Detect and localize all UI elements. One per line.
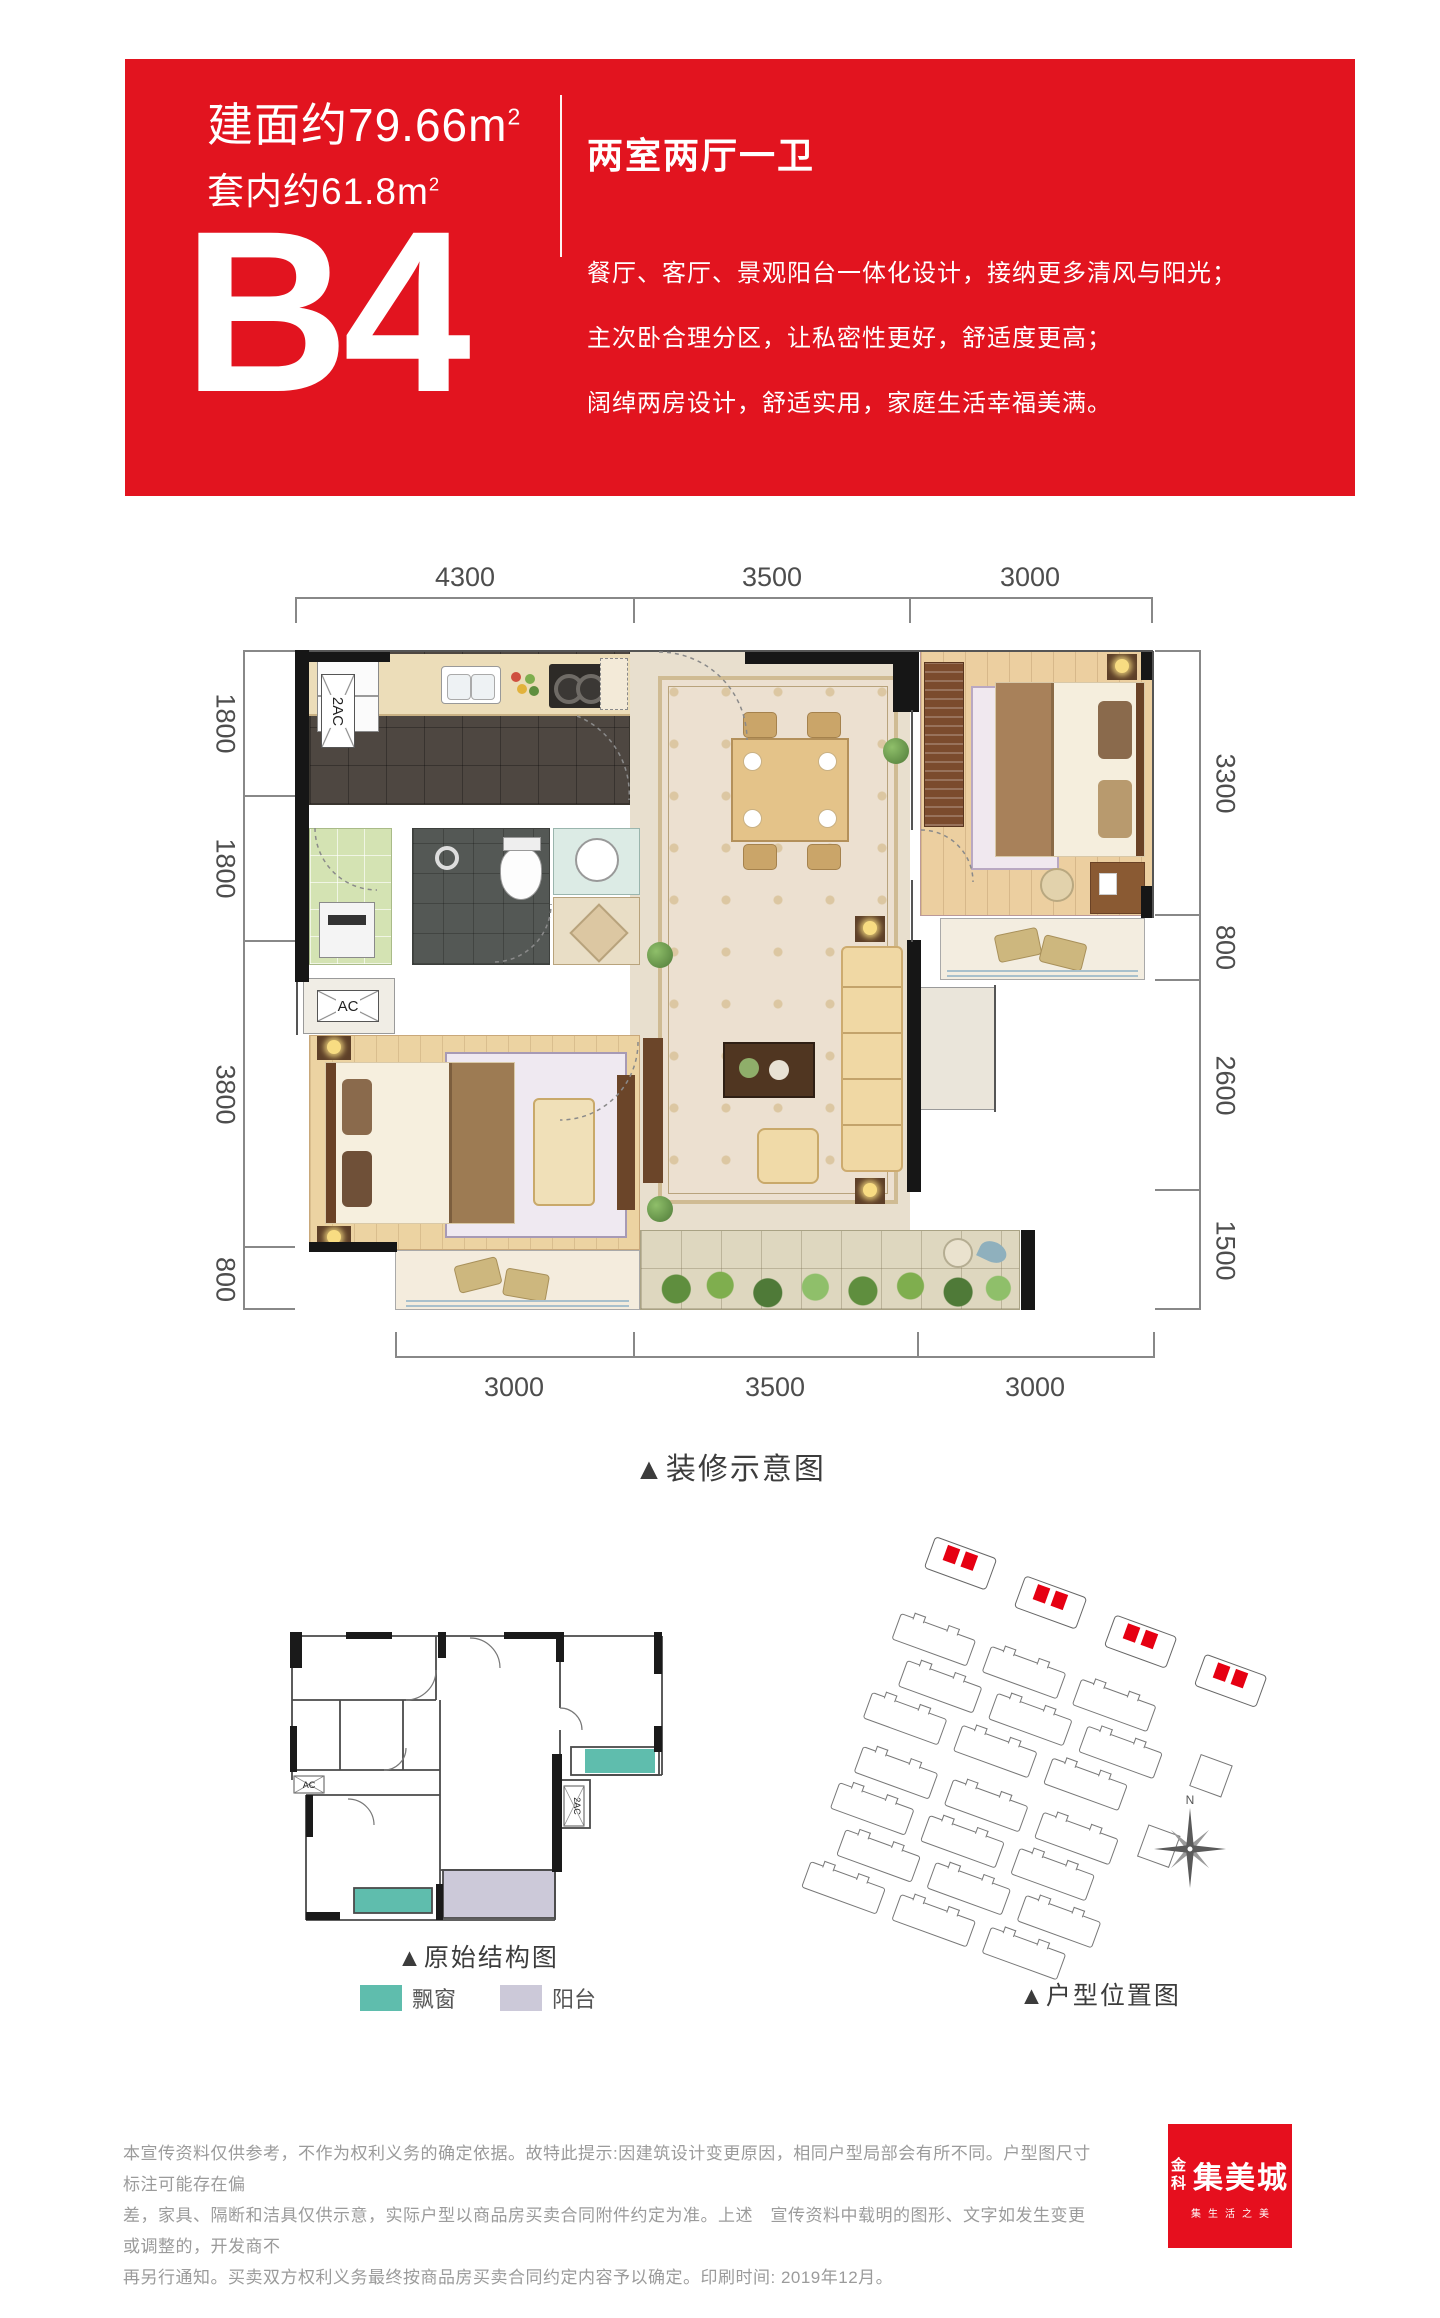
site-location-plan: [850, 1590, 1290, 1970]
dim-tick: [243, 650, 295, 652]
highlighted-unit: [1123, 1623, 1141, 1642]
dim-tick: [1155, 650, 1201, 652]
building-highlighted: [1104, 1614, 1178, 1669]
dim-top-2: 3500: [712, 562, 832, 593]
brand-logo: 金科 集美城 集生活之美: [1168, 2124, 1292, 2248]
compass-north-label: N: [1186, 1793, 1195, 1807]
bay-window-fill: [585, 1749, 655, 1773]
balcony-swatch: [500, 1985, 542, 2011]
dim-line-top: [295, 597, 1153, 599]
building-highlighted: [1194, 1654, 1268, 1709]
building-outline: [891, 1613, 976, 1667]
dim-tick: [633, 597, 635, 623]
built-area-sup: 2: [507, 104, 521, 130]
brochure-page: 建面约79.66m2 套内约61.8m2 两室两厅一卫 B4 餐厅、客厅、景观阳…: [0, 0, 1440, 2318]
site-plan-field: [794, 1530, 1325, 2050]
disclaimer: 本宣传资料仅供参考，不作为权利义务的确定依据。故特此提示:因建筑设计变更原因，相…: [123, 2138, 1093, 2293]
site-plan-caption: ▲户型位置图: [990, 1976, 1210, 2012]
compass-icon: N: [1150, 1792, 1230, 1890]
layout-type: 两室两厅一卫: [587, 127, 815, 179]
dim-left-1: 1800: [210, 679, 241, 769]
highlighted-unit: [1033, 1584, 1051, 1603]
dim-bottom-2: 3500: [715, 1372, 835, 1403]
legend-item-balcony: 阳台: [500, 1982, 596, 2014]
highlighted-unit: [960, 1551, 978, 1570]
dim-right-4: 1500: [1210, 1206, 1241, 1296]
dim-tick: [633, 1332, 635, 1358]
bay-window-swatch: [360, 1985, 402, 2011]
dim-tick: [1155, 979, 1201, 981]
brand-large: 集美城: [1193, 2153, 1289, 2197]
dim-left-4: 800: [210, 1235, 241, 1325]
built-area-text: 建面约79.66m: [207, 99, 507, 151]
dim-tick: [1155, 914, 1201, 916]
walls-overlay: [295, 650, 1155, 1310]
dim-bottom-1: 3000: [454, 1372, 574, 1403]
vertical-divider: [560, 95, 562, 257]
dim-tick: [395, 1332, 397, 1358]
building-highlighted: [924, 1536, 998, 1591]
dim-left-3: 3800: [210, 1050, 241, 1140]
building-highlighted: [1014, 1575, 1088, 1630]
highlighted-unit: [943, 1545, 961, 1564]
structure-diagram: AC 2AC: [288, 1630, 668, 1928]
disclaimer-line: 本宣传资料仅供参考，不作为权利义务的确定依据。故特此提示:因建筑设计变更原因，相…: [123, 2138, 1093, 2200]
highlighted-unit: [1050, 1591, 1068, 1610]
building-outline: [1072, 1679, 1157, 1733]
structure-ac-label: AC: [303, 1780, 316, 1790]
selling-point-line: 餐厅、客厅、景观阳台一体化设计，接纳更多清风与阳光；: [587, 241, 1237, 306]
decorated-plan-caption: ▲装修示意图: [580, 1444, 880, 1488]
legend: 飘窗 阳台: [288, 1982, 668, 2014]
highlighted-unit: [1141, 1630, 1159, 1649]
dim-right-3: 2600: [1210, 1041, 1241, 1131]
balcony-fill: [443, 1870, 555, 1918]
dim-top-3: 3000: [970, 562, 1090, 593]
selling-points: 餐厅、客厅、景观阳台一体化设计，接纳更多清风与阳光； 主次卧合理分区，让私密性更…: [587, 241, 1237, 436]
dim-tick: [1153, 1332, 1155, 1358]
dim-tick: [295, 597, 297, 623]
dim-tick: [243, 1246, 295, 1248]
highlighted-unit: [1231, 1669, 1249, 1688]
dim-tick: [917, 1332, 919, 1358]
dim-tick: [1151, 597, 1153, 623]
dim-tick: [243, 1308, 295, 1310]
disclaimer-line: 差，家具、隔断和洁具仅供示意，实际户型以商品房买卖合同附件约定为准。上述 宣传资…: [123, 2200, 1093, 2262]
structure-caption: ▲原始结构图: [288, 1938, 668, 1974]
legend-item-bay-window: 飘窗: [360, 1982, 456, 2014]
balcony-label: 阳台: [552, 1982, 596, 2014]
brand-tagline: 集生活之美: [1184, 2205, 1276, 2220]
dim-top-1: 4300: [405, 562, 525, 593]
hero-banner: 建面约79.66m2 套内约61.8m2 两室两厅一卫 B4 餐厅、客厅、景观阳…: [125, 59, 1355, 496]
dim-right-2: 800: [1210, 903, 1241, 993]
unit-code: B4: [183, 197, 465, 427]
dim-tick: [909, 597, 911, 623]
dim-bottom-3: 3000: [975, 1372, 1095, 1403]
decorated-floor-plan: 2AC AC: [295, 650, 1155, 1310]
selling-point-line: 主次卧合理分区，让私密性更好，舒适度更高；: [587, 306, 1237, 371]
bay-window-fill: [354, 1888, 432, 1913]
dim-tick: [243, 940, 295, 942]
dim-line-bottom: [395, 1356, 1155, 1358]
dim-line-left: [243, 650, 245, 1310]
dim-tick: [1155, 1189, 1201, 1191]
building-outline: [982, 1646, 1067, 1700]
structure-ac2-label: 2AC: [572, 1797, 582, 1815]
selling-point-line: 阔绰两房设计，舒适实用，家庭生活幸福美满。: [587, 371, 1237, 436]
highlighted-unit: [1213, 1662, 1231, 1681]
bay-window-label: 飘窗: [412, 1982, 456, 2014]
disclaimer-line: 再另行通知。买卖双方权利义务最终按商品房买卖合同约定内容予以确定。印刷时间: 2…: [123, 2262, 1093, 2293]
dim-tick: [1155, 1308, 1201, 1310]
dim-right-1: 3300: [1210, 739, 1241, 829]
dim-left-2: 1800: [210, 824, 241, 914]
built-area: 建面约79.66m2: [207, 89, 521, 155]
brand-small: 金科: [1171, 2157, 1189, 2192]
dim-tick: [243, 795, 295, 797]
